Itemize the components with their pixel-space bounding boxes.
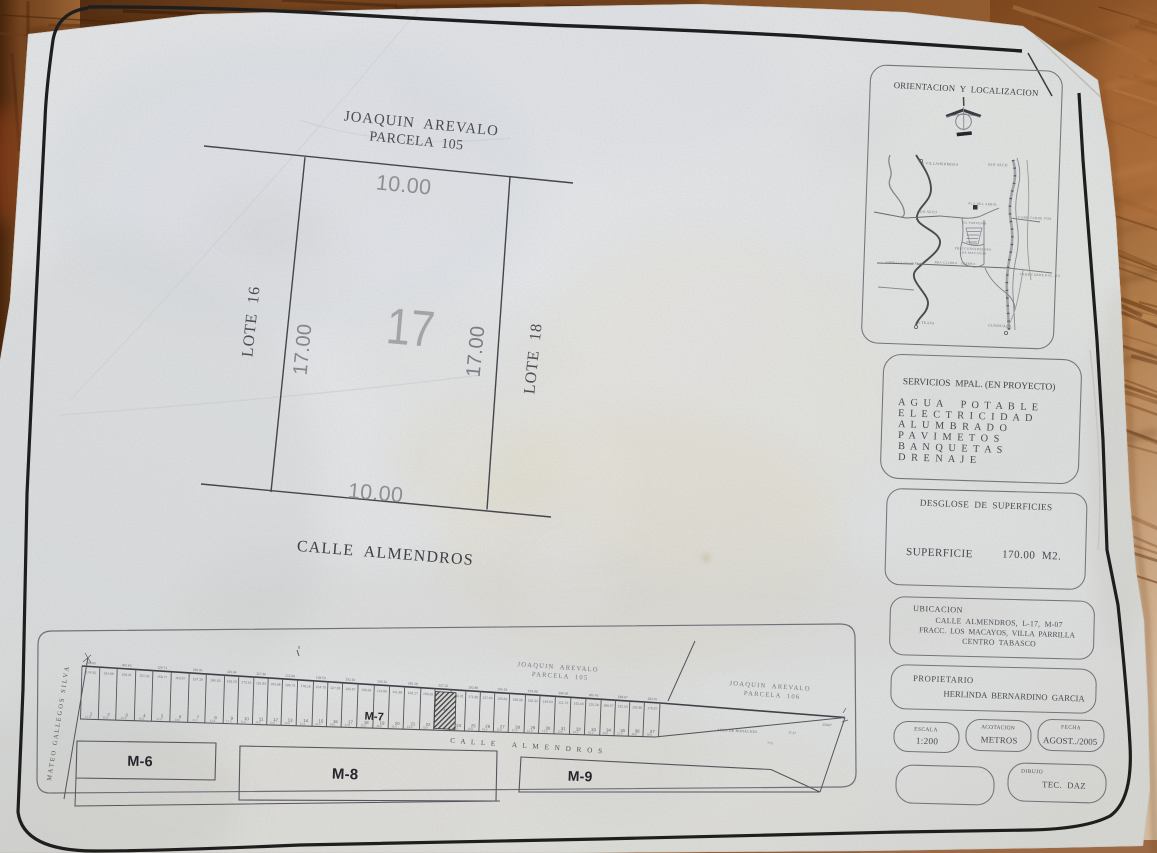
svg-text:117.36: 117.36: [256, 672, 266, 677]
svg-text:126.10: 126.10: [377, 679, 387, 684]
svg-text:15.0: 15.0: [376, 724, 382, 728]
svg-text:17.0: 17.0: [226, 719, 232, 723]
svg-text:12.0: 12.0: [512, 728, 518, 732]
svg-text:18.0: 18.0: [482, 727, 488, 731]
svg-text:192.50: 192.50: [618, 704, 628, 709]
svg-text:11.0: 11.0: [192, 718, 198, 722]
svg-text:151.20: 151.20: [139, 674, 149, 679]
svg-text:202.60: 202.60: [122, 663, 132, 668]
svg-text:185.89: 185.89: [632, 705, 642, 710]
svg-text:188.57: 188.57: [603, 703, 613, 708]
svg-text:193.88: 193.88: [468, 685, 478, 690]
svg-text:M-7: M-7: [364, 710, 384, 723]
svg-text:UBICACION: UBICACION: [913, 604, 963, 615]
svg-text:106.19: 106.19: [497, 687, 507, 692]
svg-text:250.07: 250.07: [822, 723, 832, 727]
svg-text:194.68: 194.68: [103, 671, 113, 676]
svg-text:17.0: 17.0: [85, 715, 91, 719]
svg-text:12.0: 12.0: [617, 731, 623, 735]
svg-text:191.83: 191.83: [256, 681, 266, 686]
svg-text:13.0: 13.0: [407, 725, 413, 729]
svg-text:FECHA: FECHA: [1061, 725, 1081, 732]
svg-text:128.53: 128.53: [316, 675, 326, 680]
svg-text:15.0: 15.0: [255, 720, 261, 724]
svg-text:8: 8: [298, 645, 300, 650]
svg-text:ACOTACION: ACOTACION: [981, 724, 1015, 731]
svg-text:14.0: 14.0: [329, 722, 335, 726]
svg-text:10.00: 10.00: [347, 479, 404, 508]
svg-text:17: 17: [384, 298, 437, 359]
svg-text:M-6: M-6: [127, 754, 153, 770]
svg-text:14.0: 14.0: [467, 727, 473, 731]
svg-text:19.0: 19.0: [603, 731, 609, 735]
svg-text:163.67: 163.67: [175, 676, 185, 681]
svg-text:193.97: 193.97: [345, 687, 355, 692]
svg-text:121.72: 121.72: [558, 700, 568, 705]
svg-text:RIO SECO: RIO SECO: [988, 163, 1008, 168]
svg-text:15.0: 15.0: [270, 720, 276, 724]
svg-text:170.00 M2.: 170.00 M2.: [1002, 549, 1062, 563]
svg-text:193.70: 193.70: [647, 697, 657, 702]
svg-text:19.0: 19.0: [139, 716, 145, 720]
svg-text:15.0: 15.0: [496, 728, 502, 732]
svg-text:127.99: 127.99: [330, 686, 340, 691]
svg-text:245.29: 245.29: [408, 681, 418, 686]
svg-text:12.0: 12.0: [121, 716, 127, 720]
svg-text:15.0: 15.0: [103, 715, 109, 719]
svg-text:156.59: 156.59: [361, 688, 371, 693]
svg-text:149.94: 149.94: [543, 700, 553, 705]
svg-text:185.63: 185.63: [210, 678, 220, 683]
svg-text:19.0: 19.0: [557, 729, 563, 733]
svg-text:153.88: 153.88: [528, 689, 538, 694]
svg-text:AGOST../2005: AGOST../2005: [1043, 735, 1098, 747]
svg-text:13.0: 13.0: [542, 729, 548, 733]
svg-text:17.0: 17.0: [156, 717, 162, 721]
svg-text:174.50: 174.50: [86, 670, 96, 675]
svg-text:158.77: 158.77: [157, 675, 167, 680]
svg-text:130.32: 130.32: [528, 699, 538, 704]
svg-text:212.30: 212.30: [285, 674, 295, 679]
svg-text:M-9: M-9: [568, 768, 593, 785]
svg-text:188.87: 188.87: [618, 695, 628, 700]
svg-text:196.29: 196.29: [558, 691, 568, 696]
svg-text:237.22: 237.22: [438, 683, 448, 688]
svg-text:TEC. DAZ: TEC. DAZ: [1042, 779, 1086, 791]
svg-text:18.0: 18.0: [646, 732, 652, 736]
svg-text:12.0: 12.0: [527, 729, 533, 733]
svg-text:14.0: 14.0: [174, 717, 180, 721]
svg-text:ESCALA: ESCALA: [914, 727, 938, 734]
svg-text:METROS: METROS: [980, 734, 1017, 745]
svg-text:17.0: 17.0: [345, 723, 351, 727]
svg-text:17.17: 17.17: [788, 731, 796, 735]
svg-text:262.61: 262.61: [193, 668, 203, 673]
svg-text:17: 17: [443, 708, 447, 712]
svg-text:77.5: 77.5: [767, 741, 773, 745]
svg-text:183.17: 183.17: [408, 691, 418, 696]
svg-text:16.0: 16.0: [588, 730, 594, 734]
svg-text:11.0: 11.0: [241, 720, 247, 724]
svg-text:156.26: 156.26: [423, 692, 433, 697]
svg-text:163.98: 163.98: [270, 682, 280, 687]
svg-text:197.19: 197.19: [193, 677, 203, 682]
svg-text:143.43: 143.43: [573, 701, 583, 706]
svg-text:M-8: M-8: [332, 766, 359, 784]
svg-text:14.0: 14.0: [573, 730, 579, 734]
svg-text:168.39: 168.39: [512, 698, 522, 703]
svg-text:120.28: 120.28: [588, 702, 598, 707]
svg-text:154.70: 154.70: [316, 685, 326, 690]
svg-text:115.34: 115.34: [227, 670, 237, 675]
svg-text:126.71: 126.71: [157, 665, 167, 670]
svg-text:262.42: 262.42: [589, 693, 599, 698]
svg-text:141.88: 141.88: [392, 690, 402, 695]
svg-text:SUPERFICIE: SUPERFICIE: [906, 546, 973, 560]
svg-text:12.0: 12.0: [210, 719, 216, 723]
svg-text:253.16: 253.16: [345, 677, 355, 682]
svg-text:11.0: 11.0: [315, 722, 321, 726]
svg-text:178.97: 178.97: [647, 706, 657, 711]
svg-text:196.73: 196.73: [285, 683, 295, 688]
svg-text:PROPIETARIO: PROPIETARIO: [913, 673, 974, 685]
svg-text:163.29: 163.29: [227, 679, 237, 684]
svg-text:15.0: 15.0: [360, 723, 366, 727]
svg-text:178.18: 178.18: [300, 684, 310, 689]
svg-text:19.0: 19.0: [284, 721, 290, 725]
svg-text:RIO SECO: RIO SECO: [919, 210, 938, 215]
svg-text:158.41: 158.41: [121, 673, 131, 678]
svg-text:A TEAPA: A TEAPA: [917, 321, 934, 326]
svg-text:155.63: 155.63: [497, 697, 507, 702]
svg-text:171.80: 171.80: [468, 695, 478, 700]
svg-text:11.0: 11.0: [391, 724, 397, 728]
svg-text:173.15: 173.15: [241, 680, 251, 685]
svg-text:13.0: 13.0: [422, 725, 428, 729]
svg-text:122.69: 122.69: [377, 689, 387, 694]
svg-text:DIBUJO: DIBUJO: [1021, 769, 1043, 776]
svg-text:1:200: 1:200: [916, 736, 939, 747]
svg-text:10.0: 10.0: [631, 732, 637, 736]
svg-text:11.0: 11.0: [300, 721, 306, 725]
svg-text:137.65: 137.65: [482, 696, 492, 701]
